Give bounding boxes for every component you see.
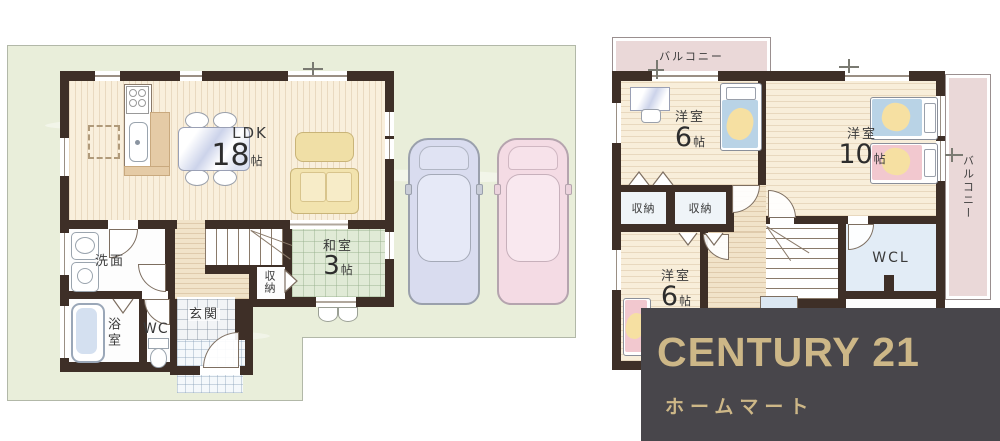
wall-stub — [884, 275, 894, 291]
engawa-door-gap — [316, 297, 356, 307]
bed-pillow — [924, 103, 936, 133]
logo-subtitle-text: ホームマート — [665, 392, 814, 419]
car-mirror — [476, 184, 483, 195]
room-10jo-label: 洋室 10 帖 — [828, 128, 896, 168]
closet-2f-right-label: 収納 — [689, 203, 713, 214]
stair-opening — [177, 220, 205, 229]
room-6jo-top-size: 6 — [675, 124, 692, 151]
closet-2f-right: 収納 — [675, 192, 726, 224]
sofa-cushion — [300, 172, 326, 202]
bed-pillow — [726, 87, 756, 100]
folding-door-icon — [652, 171, 674, 186]
kitchen-island — [150, 112, 170, 172]
genkan-step-line — [177, 297, 235, 299]
balcony-right-label: バルコニー — [963, 155, 974, 220]
car-cabin — [506, 174, 560, 262]
car-hood — [508, 146, 558, 170]
room-senmen-label: 洗面 — [95, 255, 125, 268]
car-mirror — [405, 184, 412, 195]
stair-winder-line — [766, 226, 791, 261]
floorplan-canvas: 収納 — [0, 0, 1000, 441]
stove-burner — [138, 99, 146, 107]
folding-door-icon — [112, 298, 134, 315]
window — [385, 139, 394, 159]
room-6jo-top-label: 洋室 6 帖 — [660, 111, 720, 151]
window — [95, 71, 120, 81]
stove-burner — [129, 89, 137, 97]
fridge-space — [88, 125, 120, 159]
window — [385, 232, 394, 259]
window — [288, 71, 347, 81]
bed — [720, 83, 762, 151]
door-gap — [848, 216, 868, 224]
door-gap — [108, 220, 138, 229]
room-genkan-label: 玄関 — [188, 308, 220, 321]
room-6jo-bottom-unit: 帖 — [679, 295, 691, 307]
hall-1f — [205, 274, 249, 299]
car-mirror — [494, 184, 501, 195]
window — [60, 233, 69, 275]
car-pink — [497, 138, 569, 305]
closet-2f-left: 収納 — [621, 192, 666, 224]
stairs-1f — [205, 229, 283, 265]
stairs-2f — [766, 224, 838, 299]
folding-door-icon — [704, 232, 724, 246]
kitchen-island — [124, 166, 170, 176]
toilet-bowl — [150, 348, 167, 368]
window — [612, 103, 621, 143]
room-ldk-label: LDK 18 帖 — [200, 126, 274, 171]
room-washitsu-unit: 帖 — [341, 264, 353, 276]
dimension-tick — [303, 68, 323, 70]
sink-faucet — [135, 140, 140, 145]
entry-porch — [177, 375, 243, 393]
window — [60, 138, 69, 176]
room-wcl-label: WCL — [872, 251, 909, 265]
room-yokushitsu-label: 浴室 — [106, 317, 119, 349]
stair-winder-line — [250, 230, 290, 260]
hall-1f — [175, 229, 205, 299]
washing-machine-drum — [77, 268, 93, 284]
window — [612, 250, 621, 290]
dimension-tick — [839, 66, 859, 68]
window — [180, 71, 202, 81]
window — [60, 306, 69, 358]
closet-1f: 収納 — [257, 267, 285, 299]
closet-1f-label: 収納 — [264, 270, 275, 294]
car-blue — [408, 138, 480, 305]
balcony-top-label: バルコニー — [659, 51, 724, 62]
room-wc-label: WC — [143, 322, 169, 336]
window — [385, 112, 394, 136]
room-washitsu-size: 3 — [323, 253, 340, 279]
garden-step — [338, 307, 358, 322]
balcony-right: バルコニー — [945, 74, 991, 300]
folding-door-icon — [678, 232, 698, 246]
coffee-table — [295, 132, 354, 162]
sofa-cushion — [326, 172, 352, 202]
closet-door-icon — [284, 269, 299, 294]
logo-block: CENTURY 21 ホームマート — [641, 308, 1000, 441]
balcony-top: バルコニー — [612, 37, 771, 75]
folding-door-icon — [628, 171, 650, 186]
desk — [630, 87, 670, 111]
window — [845, 71, 909, 81]
dimension-tick — [945, 154, 963, 156]
closet-2f-left-label: 収納 — [632, 203, 656, 214]
desk-chair — [641, 109, 661, 123]
stove-burner — [138, 89, 146, 97]
room-6jo-bottom-size: 6 — [661, 283, 678, 310]
washbasin-bowl — [75, 237, 95, 254]
stair-winder-line — [766, 226, 809, 253]
room-washitsu-label: 和室 3 帖 — [312, 240, 364, 279]
garden-step — [318, 307, 338, 322]
sliding-door-gap — [290, 220, 348, 229]
room-10jo-unit: 帖 — [874, 153, 886, 165]
logo-brand-text: CENTURY 21 — [657, 329, 920, 376]
bathtub-water — [76, 308, 97, 354]
car-mirror — [565, 184, 572, 195]
car-hood — [419, 146, 469, 170]
bed-pillow — [924, 149, 936, 177]
room-6jo-bottom-label: 洋室 6 帖 — [648, 270, 704, 310]
room-ldk-unit: 帖 — [251, 155, 263, 167]
car-cabin — [417, 174, 471, 262]
dimension-tick — [951, 148, 953, 162]
window — [652, 71, 718, 81]
room-6jo-top-unit: 帖 — [693, 136, 705, 148]
dimension-tick — [648, 69, 664, 71]
door-gap — [142, 291, 168, 299]
stove-burner — [129, 99, 137, 107]
dining-chair — [185, 169, 209, 186]
room-ldk-size: 18 — [211, 141, 249, 171]
room-10jo-size: 10 — [838, 141, 872, 168]
